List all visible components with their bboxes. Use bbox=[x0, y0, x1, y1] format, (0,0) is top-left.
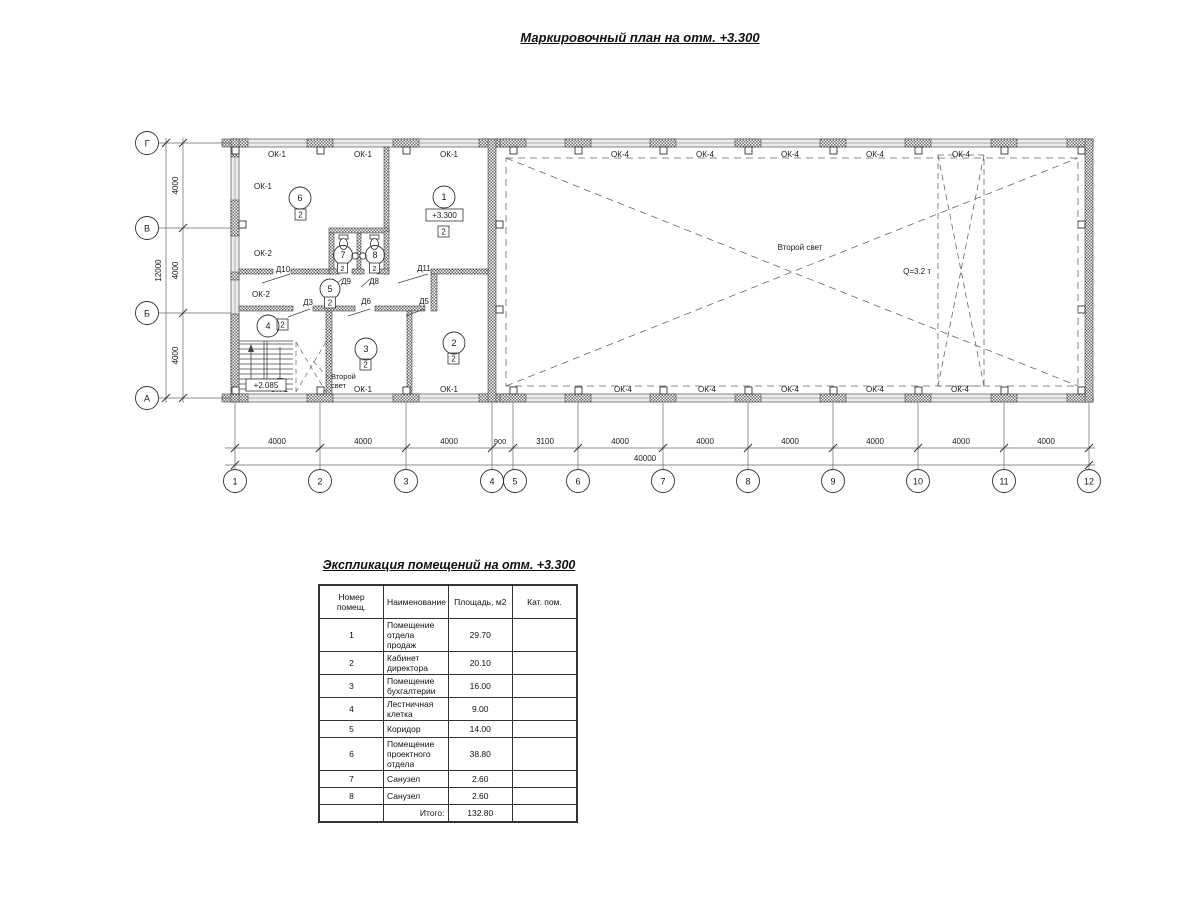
window-label: ОК-4 bbox=[866, 150, 885, 159]
axis-label: 7 bbox=[660, 477, 665, 487]
table-row: 7 Санузел 2.60 bbox=[319, 771, 577, 788]
floor-plan: Второй свет Q=3.2 т bbox=[0, 0, 1200, 545]
table-row: 4 Лестничная клетка 9.00 bbox=[319, 698, 577, 721]
room-num: 7 bbox=[319, 771, 384, 788]
hall-second-light-label: Второй свет bbox=[778, 243, 823, 252]
room-cat bbox=[513, 721, 578, 738]
room-area: 38.80 bbox=[448, 738, 513, 771]
dim-bottom: 4000 bbox=[952, 437, 970, 446]
room-name: Кабинет директора bbox=[384, 652, 449, 675]
table-row: 3 Помещение бухгалтерии 16.00 bbox=[319, 675, 577, 698]
room-number: 3 bbox=[363, 344, 368, 354]
total-empty bbox=[319, 805, 384, 823]
room-number: 6 bbox=[297, 193, 302, 203]
window-label: ОК-4 bbox=[611, 150, 630, 159]
dim-bottom: 4000 bbox=[611, 437, 629, 446]
room-number: 7 bbox=[340, 250, 345, 260]
door-label: Д6 bbox=[361, 297, 371, 306]
crane-capacity-label: Q=3.2 т bbox=[903, 267, 931, 276]
room-num: 2 bbox=[319, 652, 384, 675]
room-num: 3 bbox=[319, 675, 384, 698]
col-header-name: Наименование bbox=[384, 585, 449, 619]
axis-label: 3 bbox=[403, 477, 408, 487]
dim-bottom: 4000 bbox=[268, 437, 286, 446]
window-label: ОК-1 bbox=[354, 150, 373, 159]
axis-label: Г bbox=[145, 139, 150, 149]
col-header-num: Номер помещ. bbox=[319, 585, 384, 619]
window-label: ОК-4 bbox=[696, 150, 715, 159]
dim-bottom: 4000 bbox=[354, 437, 372, 446]
bottom-dims: 4000 4000 4000 900 3100 4000 4000 4000 4… bbox=[268, 437, 1055, 463]
hall-void-lines bbox=[506, 158, 1078, 386]
room-cat bbox=[513, 738, 578, 771]
room-area: 16.00 bbox=[448, 675, 513, 698]
axis-label: 2 bbox=[317, 477, 322, 487]
room-name: Помещение проектного отдела bbox=[384, 738, 449, 771]
col-header-cat: Кат. пом. bbox=[513, 585, 578, 619]
total-value: 132.80 bbox=[448, 805, 513, 823]
dim-bottom: 900 bbox=[494, 437, 507, 446]
col-header-area: Площадь, м2 bbox=[448, 585, 513, 619]
room-name: Санузел bbox=[384, 771, 449, 788]
window-label: ОК-1 bbox=[268, 150, 287, 159]
dim-bottom: 4000 bbox=[781, 437, 799, 446]
window-label: ОК-1 bbox=[440, 150, 459, 159]
axis-label: А bbox=[144, 394, 150, 404]
axis-label: 5 bbox=[512, 477, 517, 487]
room-name: Лестничная клетка bbox=[384, 698, 449, 721]
room-num: 4 bbox=[319, 698, 384, 721]
stair-second-light-label-1: Второй bbox=[331, 372, 356, 381]
axis-label: В bbox=[144, 224, 150, 234]
room-name: Коридор bbox=[384, 721, 449, 738]
bottom-axis-grid bbox=[225, 403, 1095, 469]
axis-label: Б bbox=[144, 309, 150, 319]
evac-mark: 2 bbox=[340, 264, 344, 273]
room-cat bbox=[513, 788, 578, 805]
room-number: 8 bbox=[372, 250, 377, 260]
evac-mark: 2 bbox=[363, 361, 368, 370]
room-name: Санузел bbox=[384, 788, 449, 805]
window-label: ОК-2 bbox=[254, 249, 273, 258]
room-area: 2.60 bbox=[448, 771, 513, 788]
table-row: 5 Коридор 14.00 bbox=[319, 721, 577, 738]
door-label: Д5 bbox=[419, 297, 429, 306]
evac-mark: 2 bbox=[441, 228, 446, 237]
room-cat bbox=[513, 619, 578, 652]
axis-label: 9 bbox=[830, 477, 835, 487]
elevation-main: +3.300 bbox=[432, 211, 457, 220]
room-name: Помещение бухгалтерии bbox=[384, 675, 449, 698]
room-area: 14.00 bbox=[448, 721, 513, 738]
elevation-stair: +2.085 bbox=[254, 381, 279, 390]
room-area: 29.70 bbox=[448, 619, 513, 652]
left-axis-bubbles: Г В Б А 12000 4000 4000 4000 bbox=[136, 132, 181, 410]
dim-bottom: 3100 bbox=[536, 437, 554, 446]
left-axis-grid bbox=[159, 138, 231, 403]
evac-mark: 2 bbox=[298, 211, 303, 220]
axis-label: 11 bbox=[999, 477, 1008, 487]
window-label: ОК-4 bbox=[952, 150, 971, 159]
axis-label: 6 bbox=[575, 477, 580, 487]
axis-label: 1 bbox=[232, 477, 237, 487]
room-schedule: Экспликация помещений на отм. +3.300 Ном… bbox=[318, 558, 580, 823]
door-label: Д9 bbox=[341, 277, 351, 286]
window-label: ОК-1 bbox=[440, 385, 459, 394]
window-label: ОК-4 bbox=[781, 385, 800, 394]
window-label: ОК-1 bbox=[354, 385, 373, 394]
table-row: 1 Помещение отдела продаж 29.70 bbox=[319, 619, 577, 652]
window-label: ОК-4 bbox=[951, 385, 970, 394]
bottom-axis-bubbles: 1 2 3 4 5 6 7 8 9 10 11 12 bbox=[224, 470, 1101, 493]
room-area: 2.60 bbox=[448, 788, 513, 805]
crane-runway bbox=[938, 155, 984, 386]
room-cat bbox=[513, 652, 578, 675]
table-row: 8 Санузел 2.60 bbox=[319, 788, 577, 805]
room-cat bbox=[513, 675, 578, 698]
door-label: Д11 bbox=[417, 264, 431, 273]
schedule-title: Экспликация помещений на отм. +3.300 bbox=[318, 558, 580, 572]
room-name: Помещение отдела продаж bbox=[384, 619, 449, 652]
room-num: 6 bbox=[319, 738, 384, 771]
dim-bottom: 4000 bbox=[696, 437, 714, 446]
room-cat bbox=[513, 698, 578, 721]
dim-total-left: 12000 bbox=[154, 259, 163, 282]
room-area: 20.10 bbox=[448, 652, 513, 675]
window-label: ОК-1 bbox=[254, 182, 273, 191]
room-area: 9.00 bbox=[448, 698, 513, 721]
dim-bottom: 4000 bbox=[1037, 437, 1055, 446]
total-label: Итого: bbox=[384, 805, 449, 823]
room-number: 5 bbox=[327, 284, 332, 294]
axis-label: 8 bbox=[745, 477, 750, 487]
dim-left: 4000 bbox=[171, 176, 180, 194]
dim-left: 4000 bbox=[171, 346, 180, 364]
window-label: ОК-4 bbox=[614, 385, 633, 394]
room-number: 2 bbox=[451, 338, 456, 348]
axis-label: 10 bbox=[913, 477, 923, 487]
door-label: Д8 bbox=[369, 277, 379, 286]
schedule-table: Номер помещ. Наименование Площадь, м2 Ка… bbox=[318, 584, 578, 823]
total-cat-empty bbox=[513, 805, 578, 823]
evac-mark: 2 bbox=[328, 299, 333, 308]
room-num: 1 bbox=[319, 619, 384, 652]
window-label: ОК-4 bbox=[781, 150, 800, 159]
dim-bottom: 4000 bbox=[866, 437, 884, 446]
window-label: ОК-2 bbox=[252, 290, 271, 299]
room-number: 4 bbox=[265, 321, 270, 331]
window-label: ОК-4 bbox=[866, 385, 885, 394]
room-num: 8 bbox=[319, 788, 384, 805]
drawing-sheet: Маркировочный план на отм. +3.300 bbox=[0, 0, 1200, 900]
total-row: Итого: 132.80 bbox=[319, 805, 577, 823]
evac-mark: 2 bbox=[280, 321, 285, 330]
table-row: 6 Помещение проектного отдела 38.80 bbox=[319, 738, 577, 771]
dim-total-bottom: 40000 bbox=[634, 454, 657, 463]
room-number: 1 bbox=[441, 192, 446, 202]
room-cat bbox=[513, 771, 578, 788]
stair-void bbox=[296, 342, 329, 392]
door-label: Д3 bbox=[303, 298, 313, 307]
window-label: ОК-4 bbox=[698, 385, 717, 394]
stair-second-light-label-2: свет bbox=[331, 381, 347, 390]
axis-label: 12 bbox=[1084, 477, 1094, 487]
room-num: 5 bbox=[319, 721, 384, 738]
table-row: 2 Кабинет директора 20.10 bbox=[319, 652, 577, 675]
dim-left: 4000 bbox=[171, 261, 180, 279]
dim-bottom: 4000 bbox=[440, 437, 458, 446]
door-label: Д10 bbox=[276, 265, 291, 274]
evac-mark: 2 bbox=[372, 264, 376, 273]
evac-mark: 2 bbox=[451, 355, 456, 364]
axis-label: 4 bbox=[489, 477, 494, 487]
